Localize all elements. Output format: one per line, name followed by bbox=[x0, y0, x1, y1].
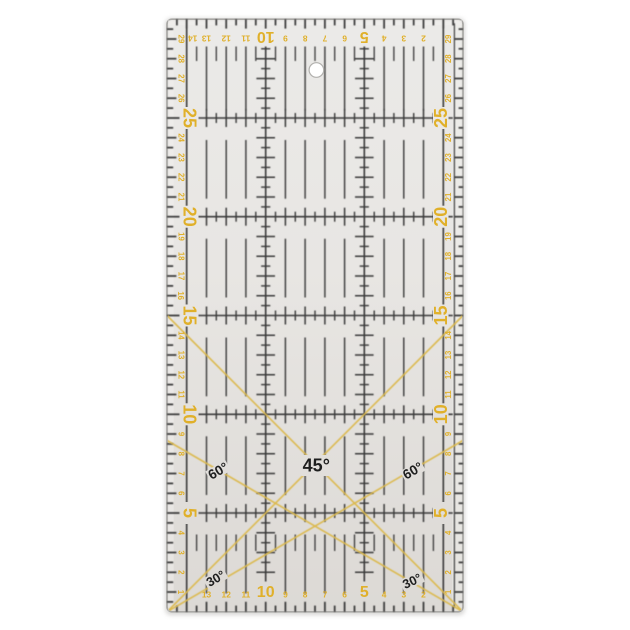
svg-text:22: 22 bbox=[444, 172, 453, 181]
svg-text:5: 5 bbox=[360, 28, 369, 45]
svg-text:8: 8 bbox=[302, 34, 307, 44]
svg-text:2: 2 bbox=[444, 569, 453, 574]
svg-text:12: 12 bbox=[176, 370, 185, 379]
svg-text:14: 14 bbox=[188, 34, 198, 44]
svg-text:14: 14 bbox=[444, 330, 453, 339]
svg-text:1: 1 bbox=[176, 590, 185, 595]
svg-text:8: 8 bbox=[303, 589, 308, 599]
svg-text:8: 8 bbox=[444, 451, 453, 456]
svg-text:16: 16 bbox=[176, 291, 185, 300]
svg-text:23: 23 bbox=[176, 153, 185, 162]
svg-text:6: 6 bbox=[342, 34, 347, 44]
svg-text:12: 12 bbox=[444, 370, 453, 379]
svg-text:24: 24 bbox=[444, 133, 453, 142]
svg-text:2: 2 bbox=[176, 570, 185, 575]
svg-text:13: 13 bbox=[176, 351, 185, 360]
svg-text:45°: 45° bbox=[303, 456, 330, 476]
svg-text:7: 7 bbox=[176, 471, 185, 475]
svg-text:10: 10 bbox=[257, 28, 275, 45]
svg-text:23: 23 bbox=[444, 153, 453, 162]
svg-text:24: 24 bbox=[176, 133, 185, 142]
svg-text:3: 3 bbox=[176, 550, 185, 555]
svg-text:13: 13 bbox=[202, 589, 212, 599]
svg-text:12: 12 bbox=[221, 34, 231, 44]
svg-text:18: 18 bbox=[176, 252, 185, 261]
svg-text:28: 28 bbox=[444, 54, 453, 63]
svg-text:4: 4 bbox=[382, 589, 387, 599]
svg-text:12: 12 bbox=[222, 589, 232, 599]
svg-text:5: 5 bbox=[431, 508, 451, 518]
svg-text:11: 11 bbox=[241, 34, 250, 44]
svg-text:11: 11 bbox=[176, 390, 185, 399]
svg-text:15: 15 bbox=[431, 305, 451, 325]
svg-text:21: 21 bbox=[176, 193, 185, 202]
svg-text:26: 26 bbox=[176, 94, 185, 103]
svg-text:19: 19 bbox=[444, 232, 453, 241]
svg-text:2: 2 bbox=[421, 34, 426, 44]
svg-text:2: 2 bbox=[421, 589, 426, 599]
svg-text:20: 20 bbox=[180, 207, 200, 227]
svg-text:7: 7 bbox=[323, 589, 328, 599]
svg-text:7: 7 bbox=[322, 34, 327, 44]
svg-text:15: 15 bbox=[180, 305, 200, 325]
svg-text:13: 13 bbox=[202, 34, 212, 44]
svg-text:9: 9 bbox=[176, 432, 185, 437]
svg-text:10: 10 bbox=[257, 584, 275, 601]
svg-text:1: 1 bbox=[444, 589, 453, 594]
svg-text:7: 7 bbox=[444, 471, 453, 475]
svg-text:27: 27 bbox=[444, 74, 453, 83]
svg-text:4: 4 bbox=[444, 530, 453, 535]
svg-text:3: 3 bbox=[401, 589, 406, 599]
svg-text:9: 9 bbox=[283, 589, 288, 599]
svg-text:5: 5 bbox=[360, 584, 369, 601]
svg-text:9: 9 bbox=[444, 431, 453, 436]
svg-text:6: 6 bbox=[176, 491, 185, 496]
svg-text:14: 14 bbox=[176, 331, 185, 340]
svg-text:17: 17 bbox=[176, 272, 185, 281]
svg-text:29: 29 bbox=[444, 34, 453, 43]
svg-text:27: 27 bbox=[176, 74, 185, 83]
svg-text:3: 3 bbox=[444, 550, 453, 555]
svg-text:17: 17 bbox=[444, 272, 453, 281]
svg-text:6: 6 bbox=[444, 490, 453, 495]
svg-text:21: 21 bbox=[444, 192, 453, 201]
svg-text:13: 13 bbox=[444, 350, 453, 359]
svg-text:9: 9 bbox=[283, 34, 288, 44]
svg-text:10: 10 bbox=[431, 404, 451, 424]
svg-text:22: 22 bbox=[176, 173, 185, 182]
svg-text:19: 19 bbox=[176, 232, 185, 241]
svg-text:18: 18 bbox=[444, 251, 453, 260]
svg-text:4: 4 bbox=[381, 34, 386, 44]
svg-text:5: 5 bbox=[180, 508, 200, 518]
svg-text:28: 28 bbox=[176, 54, 185, 63]
svg-text:11: 11 bbox=[444, 390, 453, 399]
svg-text:16: 16 bbox=[444, 291, 453, 300]
svg-text:10: 10 bbox=[180, 404, 200, 424]
svg-text:3: 3 bbox=[401, 34, 406, 44]
svg-text:29: 29 bbox=[176, 35, 185, 44]
svg-text:6: 6 bbox=[342, 589, 347, 599]
svg-text:26: 26 bbox=[444, 93, 453, 102]
svg-text:11: 11 bbox=[241, 589, 250, 599]
svg-text:25: 25 bbox=[431, 108, 451, 128]
svg-text:20: 20 bbox=[431, 207, 451, 227]
svg-text:25: 25 bbox=[180, 108, 200, 128]
svg-text:4: 4 bbox=[176, 531, 185, 536]
svg-text:8: 8 bbox=[176, 452, 185, 457]
